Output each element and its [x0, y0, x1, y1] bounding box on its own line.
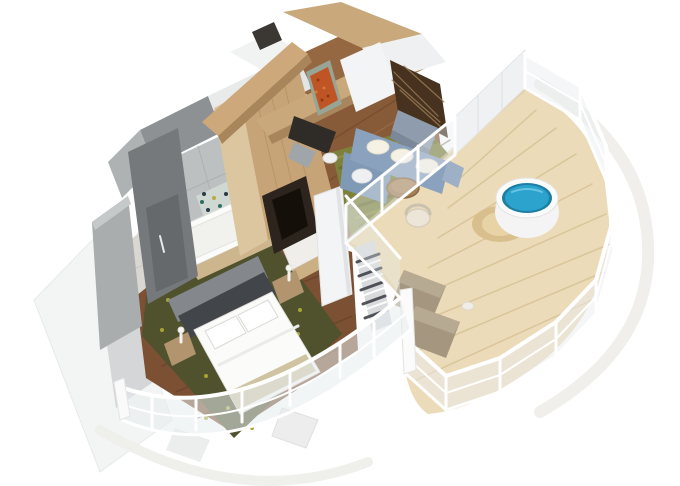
desk-chair — [323, 153, 337, 163]
lamp-right-shade — [286, 265, 292, 271]
lounger-side-table — [462, 302, 474, 310]
floorplan-svg — [0, 0, 680, 486]
balcony-chair — [406, 209, 430, 227]
sofa-cushion-1 — [367, 140, 389, 154]
sofa-chaise-pillow — [352, 169, 372, 183]
lamp-left-shade — [178, 327, 184, 333]
suite-floorplan-render — [0, 0, 680, 486]
